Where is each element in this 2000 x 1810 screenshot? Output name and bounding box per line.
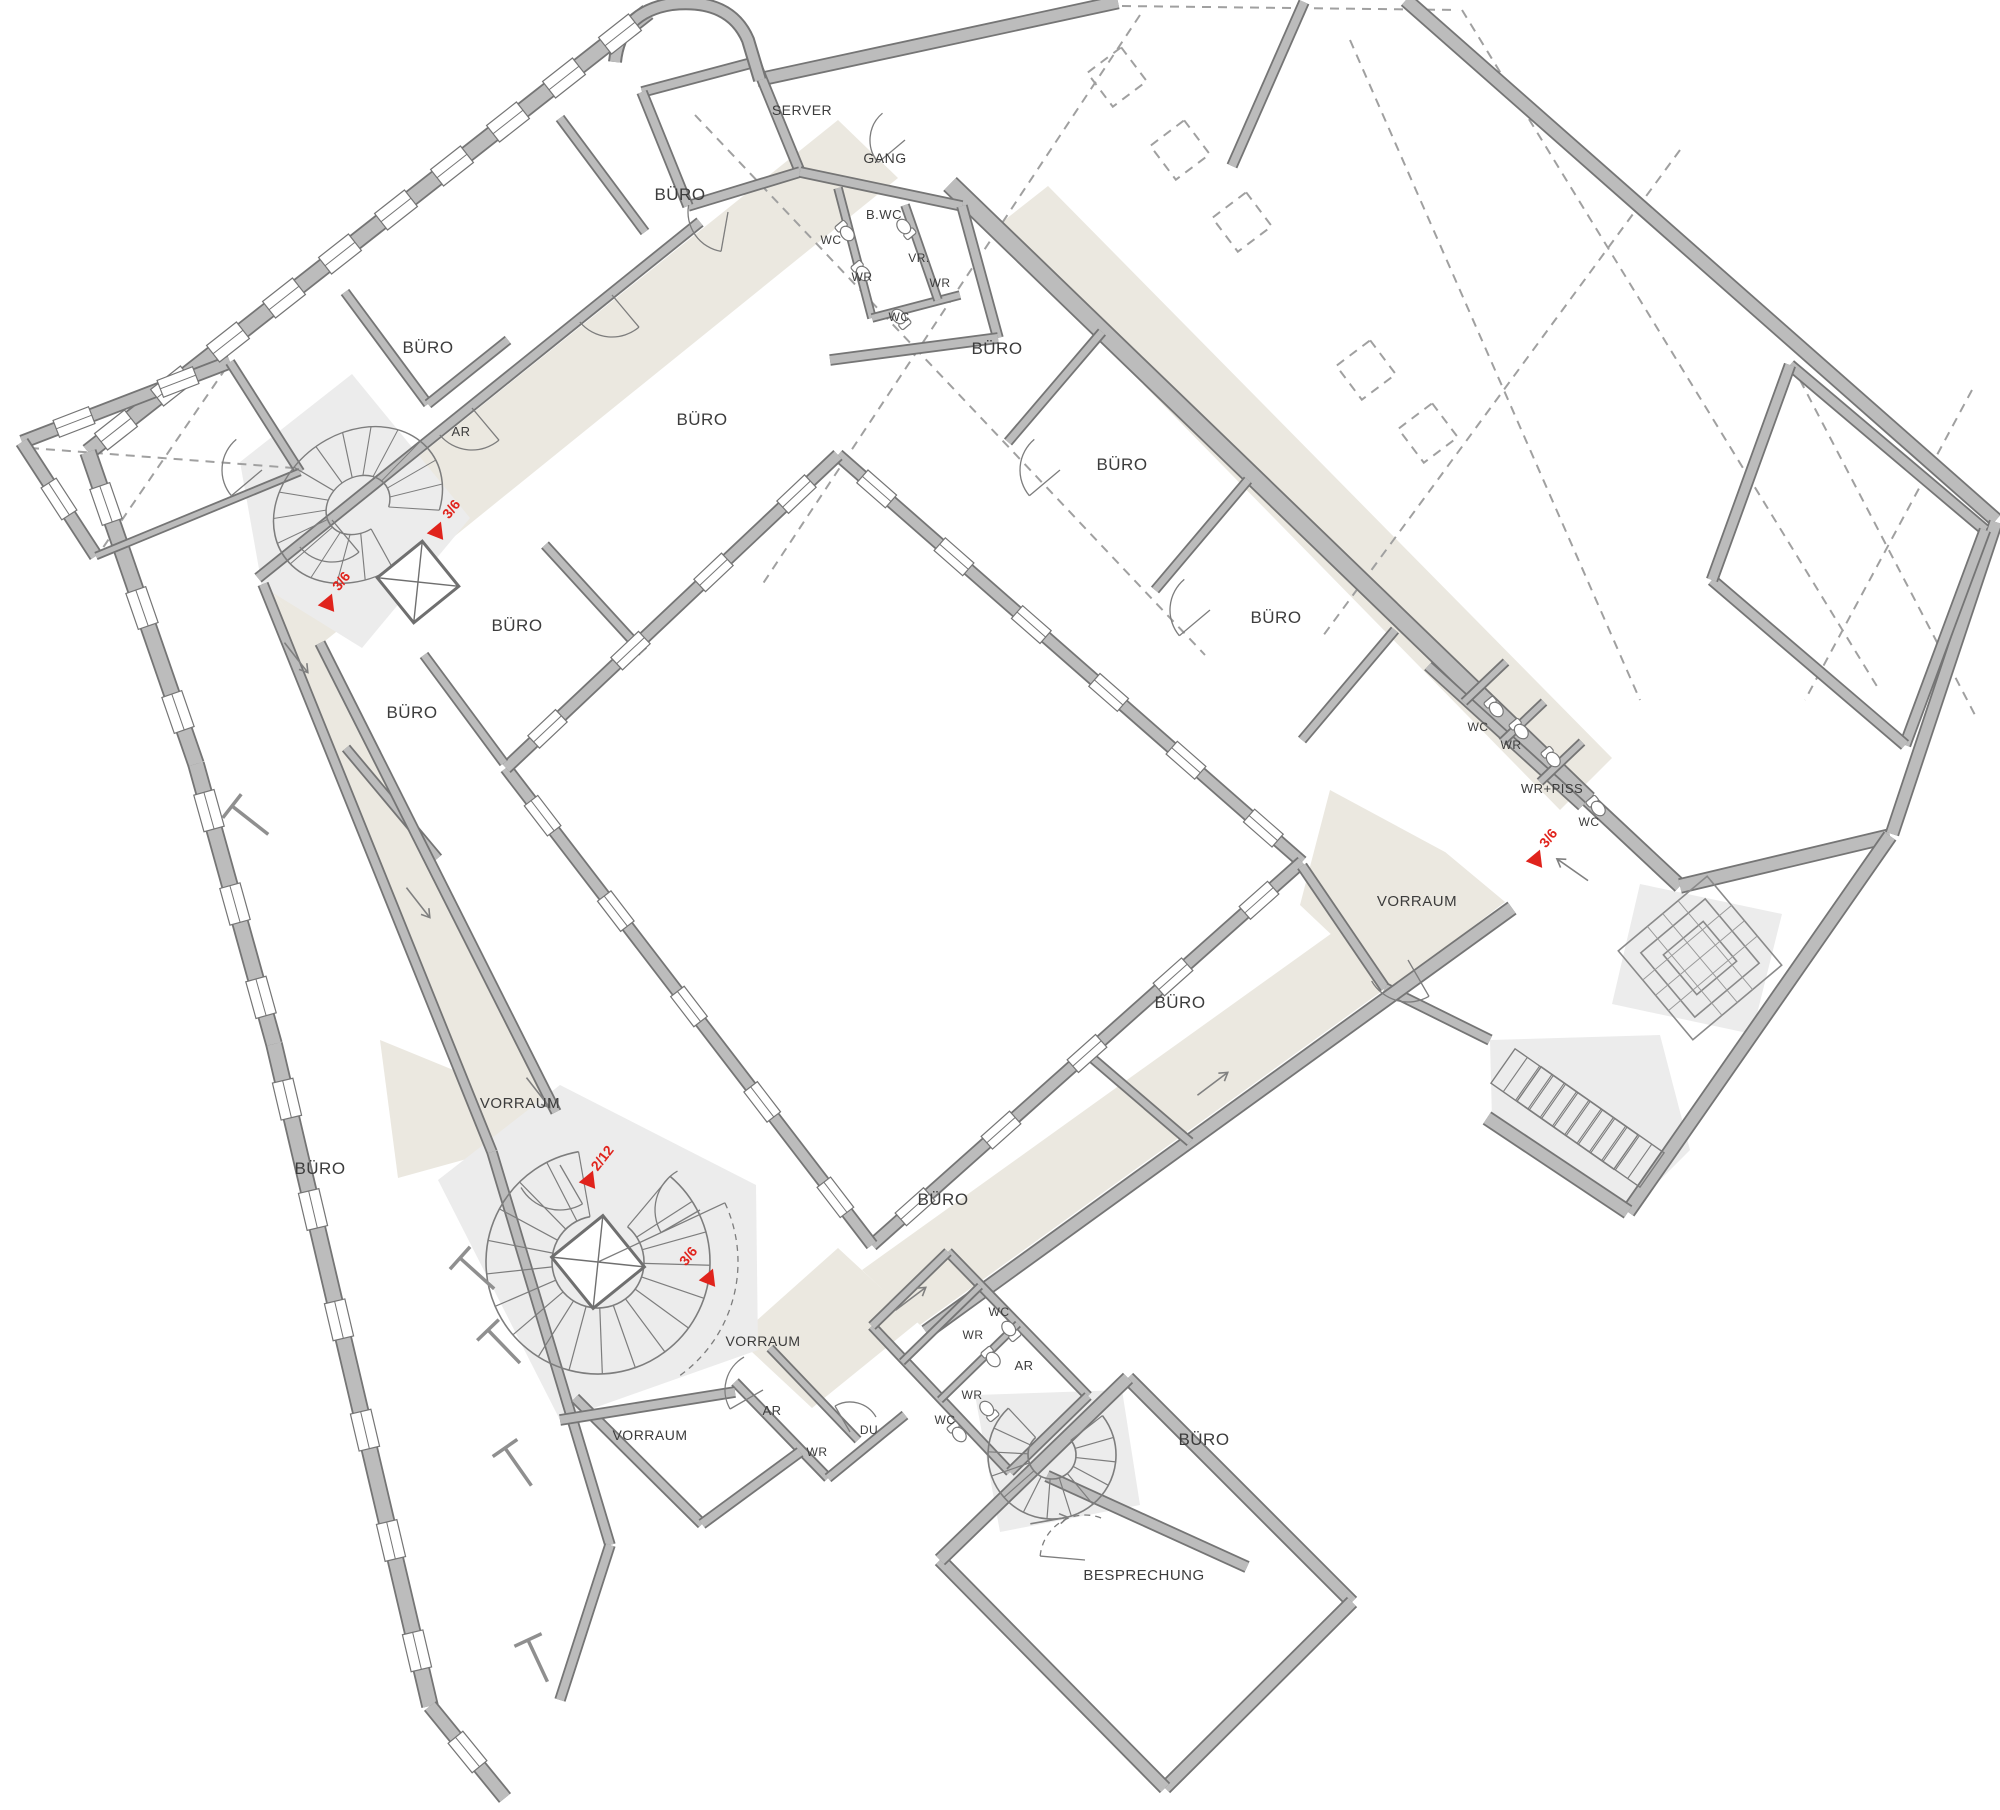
room-label: BÜRO <box>1178 1430 1229 1449</box>
room-label: BÜRO <box>917 1190 968 1209</box>
room-label: B.WC <box>866 207 902 222</box>
room-label: WC <box>889 310 910 324</box>
room-label: BÜRO <box>386 703 437 722</box>
room-label: DU <box>860 1423 878 1437</box>
room-label: BÜRO <box>654 185 705 204</box>
room-label: BÜRO <box>491 616 542 635</box>
floor-plan-page: SERVERGANGB.WCWCWRVR.WRWCBÜROBÜROARBÜROB… <box>0 0 2000 1810</box>
level-marker: 3/6 <box>1526 825 1561 872</box>
room-label: WC <box>935 1413 956 1427</box>
room-label: AR <box>451 424 470 439</box>
room-label: BÜRO <box>1154 993 1205 1012</box>
svg-text:3/6: 3/6 <box>1536 825 1561 850</box>
room-label: WR <box>963 1328 984 1342</box>
room-label: WR <box>962 1388 983 1402</box>
room-label: BÜRO <box>402 338 453 357</box>
room-label: GANG <box>863 150 906 166</box>
room-label: VORRAUM <box>725 1333 800 1349</box>
room-label: BÜRO <box>676 410 727 429</box>
room-label: WC <box>989 1305 1010 1319</box>
room-label: WC <box>1468 720 1489 734</box>
room-label: WR <box>1501 738 1522 752</box>
room-label: BÜRO <box>1250 608 1301 627</box>
room-label: BÜRO <box>971 339 1022 358</box>
room-label: WR <box>930 276 951 290</box>
room-label: WC <box>821 233 842 247</box>
room-label: VORRAUM <box>480 1095 560 1112</box>
room-label: VORRAUM <box>1377 893 1457 910</box>
room-label: BESPRECHUNG <box>1083 1567 1204 1584</box>
room-label: VORRAUM <box>612 1427 687 1443</box>
floor-plan-svg: SERVERGANGB.WCWCWRVR.WRWCBÜROBÜROARBÜROB… <box>0 0 2000 1810</box>
room-label: BÜRO <box>1096 455 1147 474</box>
room-label: BÜRO <box>294 1159 345 1178</box>
room-label: WC <box>1579 815 1600 829</box>
room-label: SERVER <box>772 102 832 118</box>
room-label: WR <box>852 270 873 284</box>
room-label: AR <box>762 1403 781 1418</box>
room-label: VR. <box>908 251 930 265</box>
room-label: AR <box>1014 1358 1033 1373</box>
room-label: WR <box>807 1445 828 1459</box>
room-label: WR+PISS <box>1521 781 1583 796</box>
